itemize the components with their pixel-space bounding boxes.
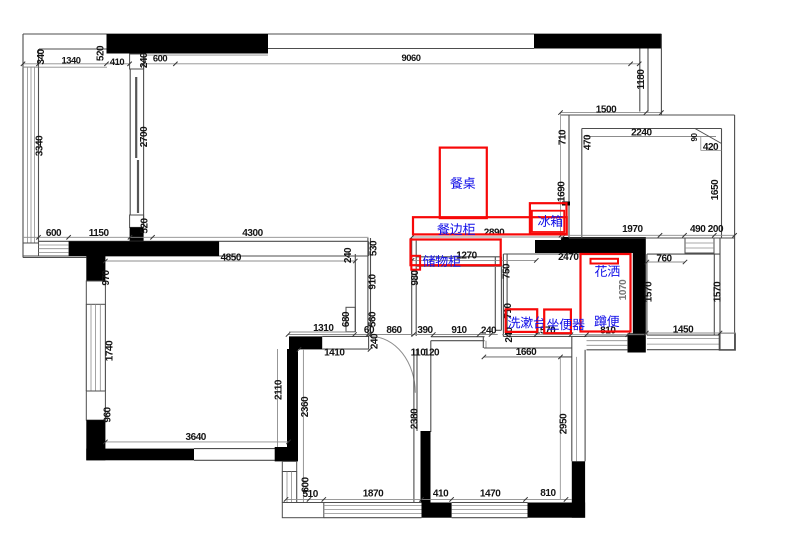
svg-text:1450: 1450 [673,325,694,336]
svg-text:90: 90 [690,133,699,142]
svg-text:1310: 1310 [313,323,334,334]
svg-text:980: 980 [410,269,421,285]
svg-text:240: 240 [139,52,150,68]
svg-text:710: 710 [558,129,569,145]
svg-text:1970: 1970 [622,224,643,235]
svg-text:1570: 1570 [713,281,724,302]
svg-text:1650: 1650 [710,179,721,200]
svg-text:2890: 2890 [484,228,505,239]
svg-text:410: 410 [433,488,449,499]
svg-text:2360: 2360 [300,396,311,417]
svg-text:1150: 1150 [89,228,110,239]
svg-text:530: 530 [369,240,380,256]
svg-text:680: 680 [341,311,352,327]
svg-text:810: 810 [540,488,556,499]
svg-text:600: 600 [46,228,62,239]
svg-text:2700: 2700 [139,126,150,147]
svg-text:470: 470 [583,134,594,150]
svg-text:200: 200 [708,224,724,235]
svg-text:960: 960 [103,406,114,422]
svg-text:1340: 1340 [61,55,80,66]
svg-text:1690: 1690 [557,181,568,202]
svg-text:240: 240 [481,326,497,337]
svg-text:2240: 2240 [631,127,652,138]
svg-text:1470: 1470 [480,488,501,499]
svg-text:340: 340 [36,48,47,64]
svg-text:1410: 1410 [324,348,345,359]
svg-text:970: 970 [101,269,112,285]
svg-text:860: 860 [386,325,402,336]
svg-text:1180: 1180 [636,69,647,90]
svg-text:600: 600 [153,53,168,64]
svg-text:1070: 1070 [618,279,629,300]
svg-text:120: 120 [424,348,440,359]
svg-text:1740: 1740 [105,340,116,361]
svg-text:240: 240 [369,333,380,349]
svg-text:1660: 1660 [516,347,537,358]
svg-text:600: 600 [301,476,312,492]
svg-text:520: 520 [140,217,151,233]
svg-text:1500: 1500 [596,104,617,115]
svg-text:240: 240 [343,247,354,263]
svg-text:9060: 9060 [401,52,420,63]
svg-text:3340: 3340 [35,135,46,156]
svg-text:1870: 1870 [363,488,384,499]
svg-text:4300: 4300 [242,228,263,239]
svg-text:410: 410 [110,56,125,67]
svg-text:910: 910 [368,273,379,289]
svg-text:2110: 2110 [274,379,285,400]
svg-text:2380: 2380 [410,408,421,429]
svg-text:760: 760 [656,253,672,264]
svg-text:490: 490 [690,224,706,235]
svg-text:520: 520 [96,45,107,61]
svg-text:4850: 4850 [221,252,242,263]
svg-text:1570: 1570 [644,281,655,302]
svg-text:2470: 2470 [558,252,579,263]
svg-text:390: 390 [417,325,433,336]
svg-text:3640: 3640 [185,432,206,443]
svg-text:420: 420 [703,142,719,153]
svg-text:750: 750 [502,263,513,279]
svg-text:2950: 2950 [559,413,570,434]
svg-text:910: 910 [451,325,467,336]
